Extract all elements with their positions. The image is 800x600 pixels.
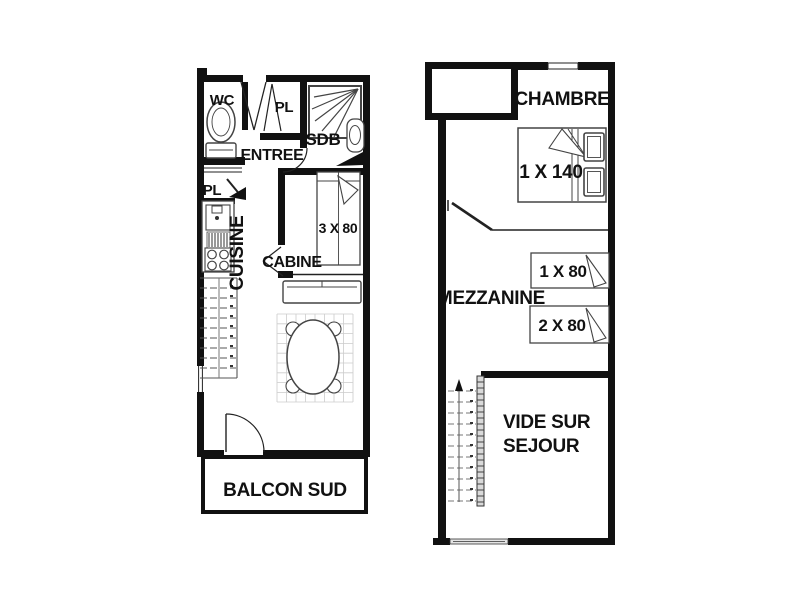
room-label-wc: WC — [210, 92, 235, 109]
dining-table — [277, 314, 353, 402]
sdb-door-leaf — [336, 152, 363, 166]
pillow-icon — [584, 133, 604, 161]
stairs-upper — [448, 376, 484, 506]
bed-label-single-2: 2 X 80 — [538, 316, 585, 335]
toilet-icon — [206, 102, 236, 158]
table-icon — [287, 320, 339, 394]
room-label-mezzanine: MEZZANINE — [437, 288, 545, 309]
room-label-cabine: CABINE — [262, 254, 322, 271]
room-label-cuisine: CUISINE — [227, 216, 248, 291]
closet-door-entry — [264, 84, 272, 131]
window-left-wall — [196, 366, 205, 392]
bed-cabine-icon — [317, 172, 360, 265]
floorplan-canvas: WC PL SDB ENTREE PL CUISINE CABINE 3 X 8… — [0, 0, 800, 600]
room-label-entree: ENTREE — [240, 147, 304, 164]
pillow-icon — [584, 168, 604, 196]
stairs-up-arrow — [455, 379, 463, 391]
partition-mezzanine — [481, 371, 608, 378]
room-label-balcon: BALCON SUD — [223, 480, 347, 501]
sink-drain — [215, 216, 219, 220]
washbasin-icon — [347, 119, 364, 152]
window-top-wall — [548, 63, 578, 69]
bed-label-double: 1 X 140 — [519, 162, 582, 183]
bed-label-single-1: 1 X 80 — [539, 262, 586, 281]
room-label-chambre: CHAMBRE — [514, 89, 609, 110]
floorplan-drawing: WC PL SDB ENTREE PL CUISINE CABINE 3 X 8… — [0, 0, 800, 600]
room-label-vide-line2: SEJOUR — [503, 436, 580, 457]
room-label-pl-kitchen: PL — [203, 182, 222, 199]
chambre-door-leaf — [452, 203, 492, 230]
plan-lower-level: WC PL SDB ENTREE PL CUISINE CABINE 3 X 8… — [196, 68, 370, 512]
room-label-vide-line1: VIDE SUR — [503, 412, 591, 433]
room-label-pl-entry: PL — [275, 99, 294, 116]
bed-label-cabine: 3 X 80 — [319, 220, 358, 236]
stairs-lower — [200, 278, 237, 378]
sofa-icon — [283, 281, 361, 303]
plan-upper-level: CHAMBRE 1 X 140 MEZZANINE 1 X 80 2 X 80 … — [425, 62, 615, 545]
balcony-door-arc — [226, 414, 264, 452]
room-label-sdb: SDB — [306, 130, 341, 149]
